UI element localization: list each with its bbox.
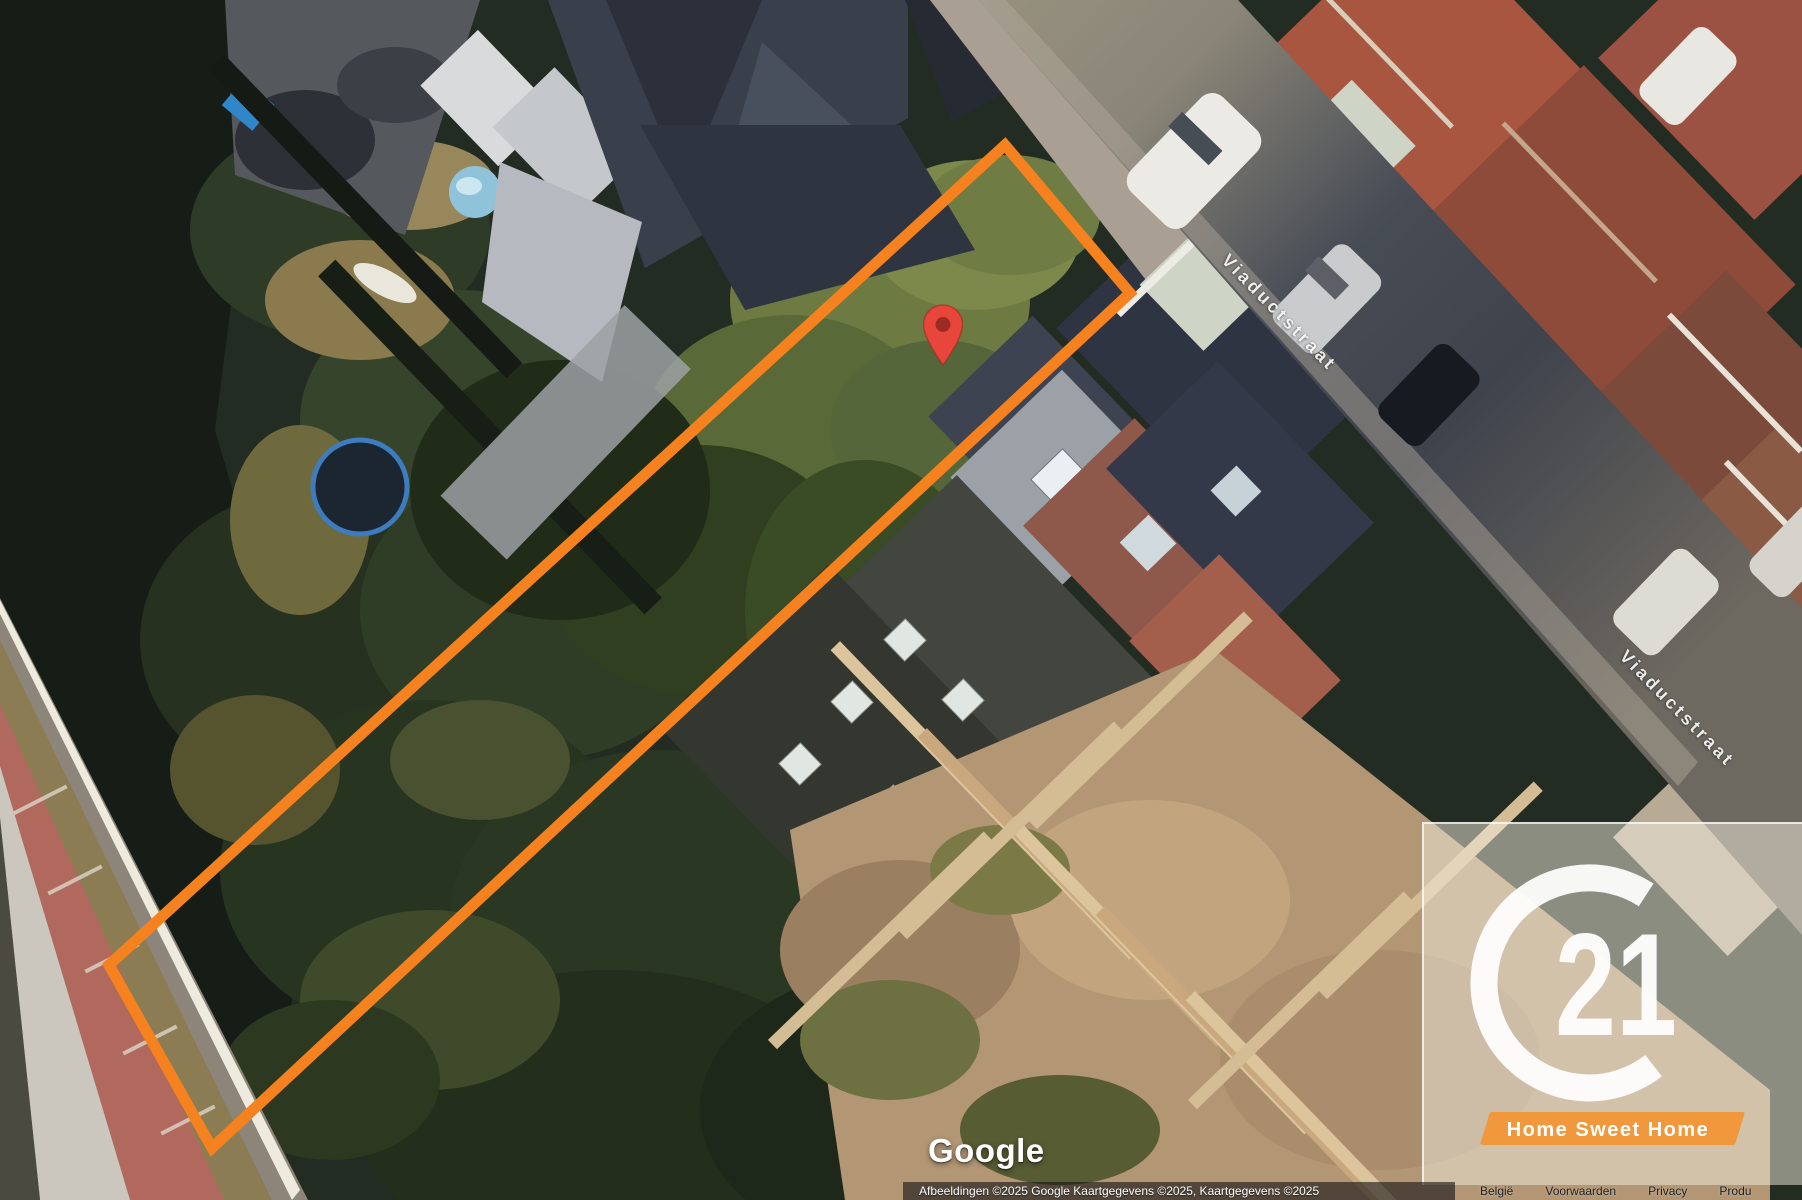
century21-logo-overlay: 21 Home Sweet Home	[1422, 822, 1802, 1185]
parcel-outline-polygon	[109, 145, 1130, 1148]
map-viewport[interactable]: Viaductstraat Viaductstraat 21 Home Swee…	[0, 0, 1802, 1200]
century21-logo: 21 Home Sweet Home	[1424, 824, 1802, 1185]
c21-number: 21	[1555, 903, 1677, 1066]
attribution-bar: Afbeeldingen ©2025 Google Kaartgegevens …	[903, 1182, 1455, 1200]
link-voorwaarden[interactable]: Voorwaarden	[1545, 1184, 1616, 1198]
link-privacy[interactable]: Privacy	[1648, 1184, 1687, 1198]
location-pin[interactable]	[923, 303, 963, 367]
link-belgie[interactable]: België	[1480, 1184, 1513, 1198]
link-product[interactable]: Produ	[1719, 1184, 1751, 1198]
google-watermark[interactable]: Google	[928, 1132, 1045, 1170]
tagline-text: Home Sweet Home	[1507, 1119, 1710, 1141]
pin-body[interactable]	[924, 305, 963, 365]
attribution-links: België Voorwaarden Privacy Produ	[1480, 1182, 1751, 1200]
tagline-banner: Home Sweet Home	[1480, 1112, 1745, 1145]
pin-inner-dot	[936, 317, 951, 332]
imagery-attribution-text: Afbeeldingen ©2025 Google Kaartgegevens …	[919, 1184, 1319, 1198]
